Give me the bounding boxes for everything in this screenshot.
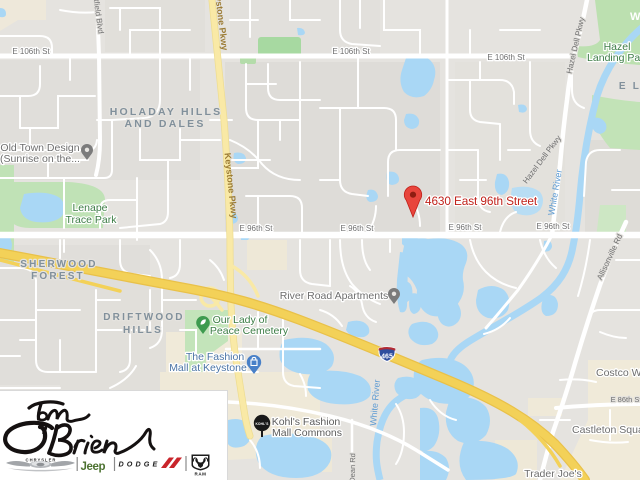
svg-text:W: W xyxy=(630,11,640,23)
svg-text:E 106th St: E 106th St xyxy=(487,53,525,62)
svg-text:465: 465 xyxy=(381,354,393,361)
svg-text:E 106th St: E 106th St xyxy=(332,47,370,56)
svg-text:Castleton Square: Castleton Square xyxy=(572,424,640,436)
svg-text:RAM: RAM xyxy=(194,472,206,477)
svg-text:DODGE: DODGE xyxy=(119,460,161,469)
svg-text:E 96th St: E 96th St xyxy=(449,223,483,232)
svg-text:Mall Commons: Mall Commons xyxy=(272,427,342,439)
svg-text:Jeep: Jeep xyxy=(81,461,106,473)
svg-text:SHERWOOD: SHERWOOD xyxy=(20,259,97,270)
svg-text:Landing Park: Landing Park xyxy=(587,52,640,64)
svg-text:E L: E L xyxy=(619,81,640,92)
svg-text:Peace Cemetery: Peace Cemetery xyxy=(210,325,289,337)
svg-text:FOREST: FOREST xyxy=(31,271,85,282)
svg-text:Costco Wholesale: Costco Wholesale xyxy=(596,367,640,379)
svg-text:Dean Rd: Dean Rd xyxy=(348,453,358,480)
svg-text:Trace Park: Trace Park xyxy=(66,214,118,226)
svg-text:HOLADAY HILLS: HOLADAY HILLS xyxy=(110,106,223,118)
svg-text:River Road Apartments: River Road Apartments xyxy=(280,290,389,302)
svg-text:AND DALES: AND DALES xyxy=(124,118,205,130)
svg-text:E 96th St: E 96th St xyxy=(537,222,571,231)
svg-text:DRIFTWOOD: DRIFTWOOD xyxy=(103,312,184,323)
svg-text:Mall at Keystone: Mall at Keystone xyxy=(169,362,247,374)
svg-text:E 106th St: E 106th St xyxy=(12,47,50,56)
svg-text:4630 East 96th Street: 4630 East 96th Street xyxy=(425,194,538,208)
svg-text:Trader Joe's: Trader Joe's xyxy=(524,468,582,480)
svg-text:E 96th St: E 96th St xyxy=(341,224,375,233)
svg-text:E 86th St: E 86th St xyxy=(611,395,640,404)
svg-text:HILLS: HILLS xyxy=(123,325,163,336)
svg-text:KOHL'S: KOHL'S xyxy=(255,422,268,426)
svg-text:Lenape: Lenape xyxy=(72,202,107,214)
svg-text:(Sunrise on the...: (Sunrise on the... xyxy=(0,153,80,165)
svg-text:E 96th St: E 96th St xyxy=(240,224,274,233)
